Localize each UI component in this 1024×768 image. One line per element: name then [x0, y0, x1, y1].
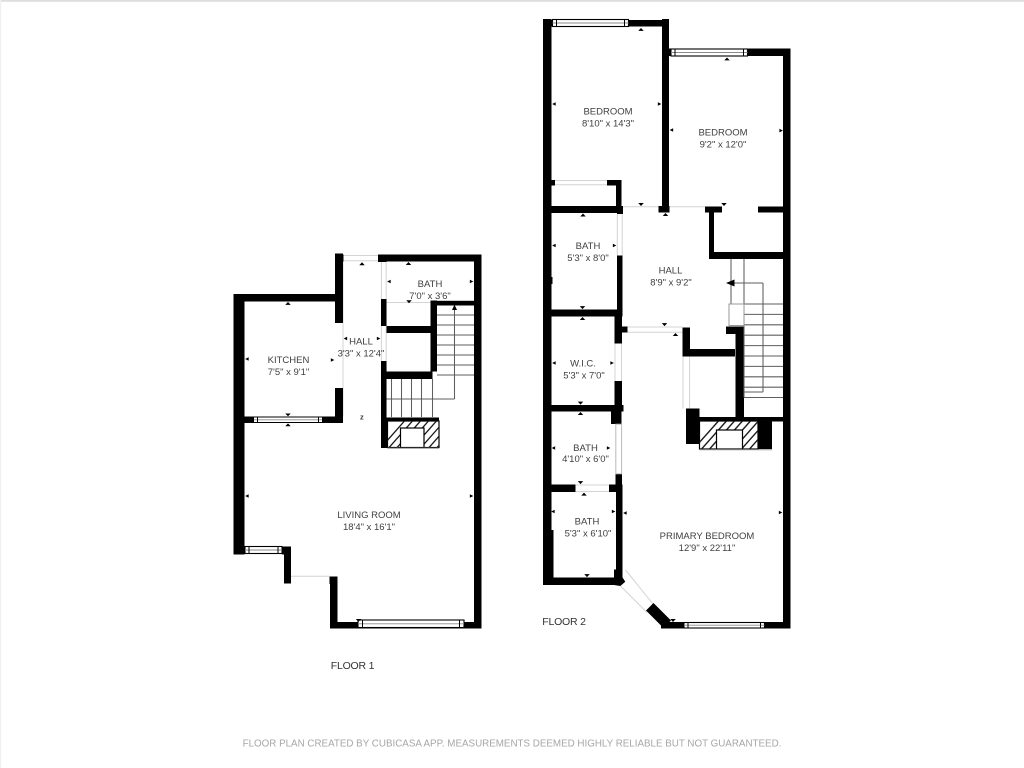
svg-text:5'3" x 6'10": 5'3" x 6'10": [565, 529, 612, 540]
svg-text:4'10" x 6'0": 4'10" x 6'0": [562, 454, 609, 465]
svg-text:BEDROOM: BEDROOM: [583, 107, 632, 118]
svg-text:BATH: BATH: [576, 241, 601, 252]
svg-text:LIVING ROOM: LIVING ROOM: [337, 510, 400, 521]
svg-text:FLOOR 2: FLOOR 2: [542, 616, 586, 628]
svg-text:8'9" x 9'2": 8'9" x 9'2": [650, 278, 692, 289]
svg-text:5'3" x 8'0": 5'3" x 8'0": [567, 253, 609, 264]
svg-text:W.I.C.: W.I.C.: [570, 359, 596, 370]
svg-text:BATH: BATH: [418, 279, 443, 290]
svg-text:8'10" x 14'3": 8'10" x 14'3": [582, 119, 634, 130]
svg-text:PRIMARY BEDROOM: PRIMARY BEDROOM: [660, 531, 755, 542]
svg-text:3'3" x 12'4": 3'3" x 12'4": [338, 348, 385, 359]
svg-text:HALL: HALL: [349, 337, 373, 348]
svg-text:BATH: BATH: [575, 517, 600, 528]
svg-text:18'4" x 16'1": 18'4" x 16'1": [343, 522, 395, 533]
svg-text:FLOOR 1: FLOOR 1: [331, 660, 375, 672]
svg-text:7'0" x 3'6": 7'0" x 3'6": [409, 291, 451, 302]
svg-text:HALL: HALL: [659, 266, 683, 277]
svg-text:BEDROOM: BEDROOM: [698, 128, 747, 139]
svg-text:12'9" x 22'11": 12'9" x 22'11": [679, 543, 736, 554]
svg-text:BATH: BATH: [573, 443, 598, 454]
svg-text:5'3" x 7'0": 5'3" x 7'0": [563, 371, 605, 382]
svg-text:KITCHEN: KITCHEN: [268, 355, 310, 366]
svg-text:z: z: [360, 413, 364, 422]
svg-text:9'2" x 12'0": 9'2" x 12'0": [700, 140, 747, 151]
svg-text:7'5" x 9'1": 7'5" x 9'1": [268, 367, 310, 378]
svg-text:FLOOR PLAN CREATED BY CUBICASA: FLOOR PLAN CREATED BY CUBICASA APP. MEAS…: [243, 739, 782, 750]
